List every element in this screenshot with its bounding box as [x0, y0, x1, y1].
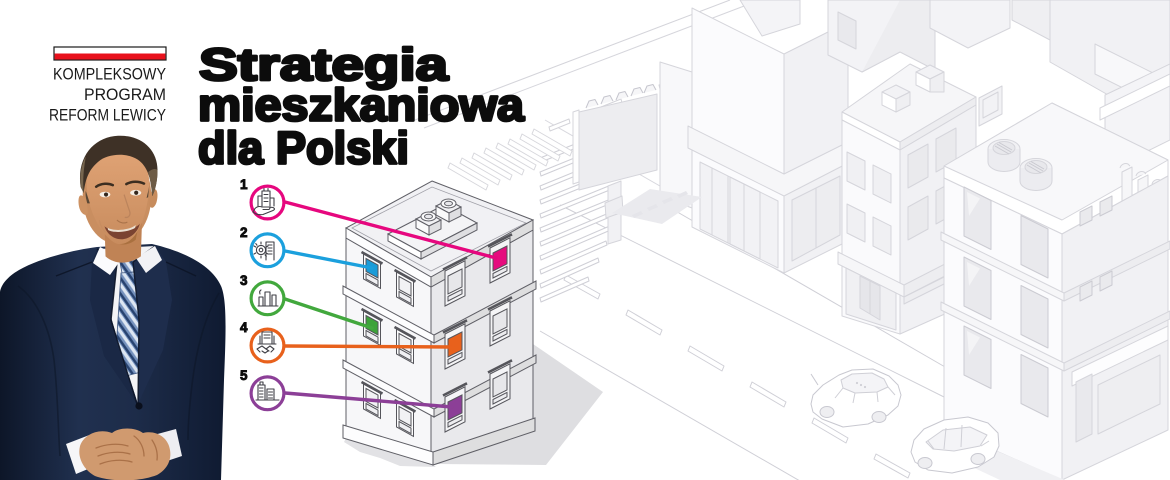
svg-text:3: 3	[240, 273, 248, 288]
svg-text:2: 2	[240, 225, 248, 240]
svg-text:5: 5	[240, 368, 248, 383]
svg-text:4: 4	[240, 320, 248, 335]
svg-text:1: 1	[240, 177, 248, 192]
svg-text:dla Polski: dla Polski	[198, 122, 409, 173]
svg-text:REFORM LEWICY: REFORM LEWICY	[49, 107, 166, 125]
svg-text:KOMPLEKSOWY: KOMPLEKSOWY	[53, 66, 166, 84]
svg-text:PROGRAM: PROGRAM	[84, 86, 166, 104]
